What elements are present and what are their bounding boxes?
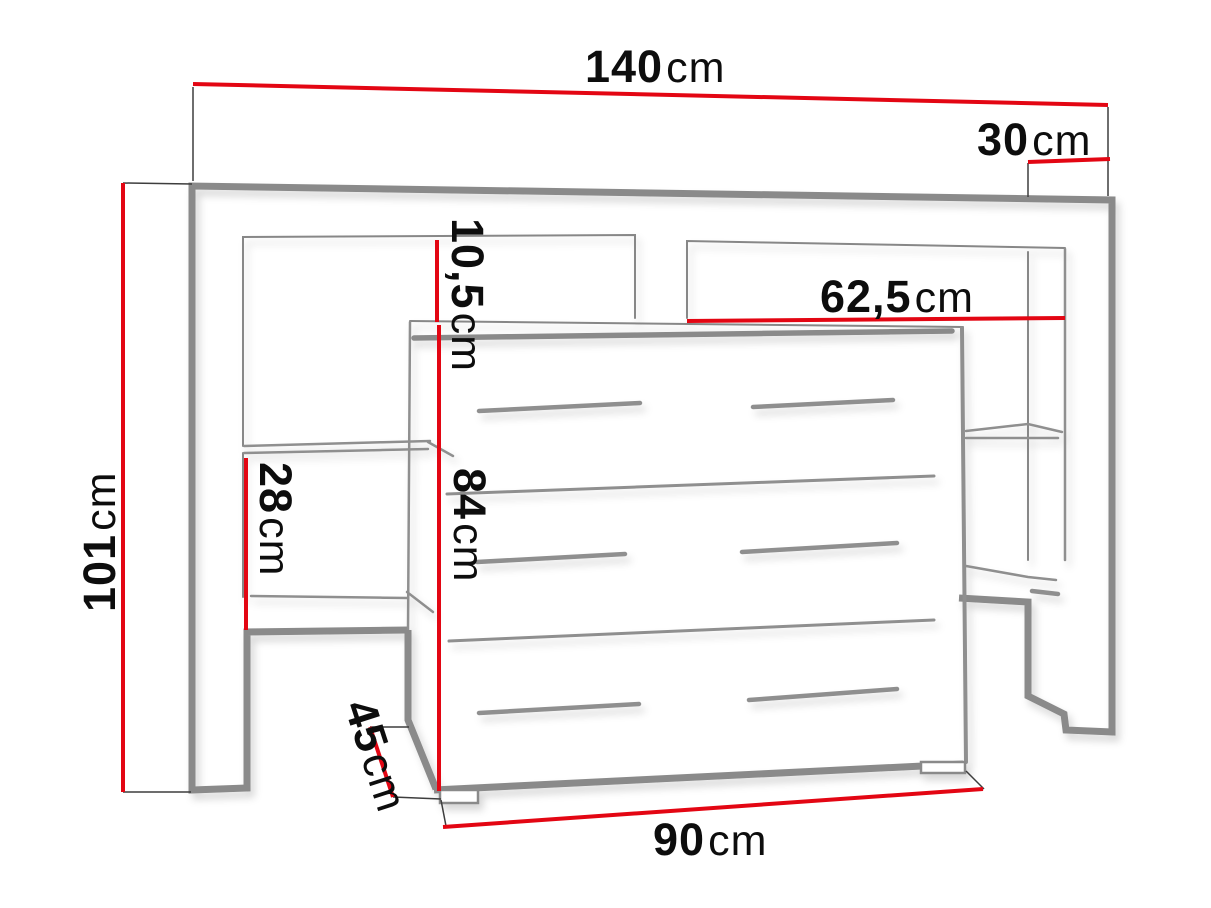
- dimension-diagram: 140cm 30cm 101cm 62,5cm 10,5cm 28cm 84cm…: [0, 0, 1211, 908]
- furniture-group: [192, 186, 1112, 803]
- chest-top-face: [414, 331, 952, 338]
- right-niche-bottom-surface: [966, 566, 1056, 580]
- chest-bottom-edge: [434, 764, 963, 790]
- left-shelf-front-edge: [244, 449, 428, 453]
- label-shelf-space: 28cm: [250, 462, 301, 576]
- label-chest-height: 84cm: [444, 468, 495, 582]
- chest-right-edge: [962, 328, 966, 762]
- left-shelf-top-edge: [244, 441, 430, 446]
- dimension-labels: 140cm 30cm 101cm 62,5cm 10,5cm 28cm 84cm…: [74, 41, 1091, 865]
- drawer3-handle-left: [479, 704, 639, 713]
- right-niche-bottom-front: [1032, 591, 1058, 594]
- label-side-depth: 30cm: [977, 114, 1091, 165]
- diagram-canvas: 140cm 30cm 101cm 62,5cm 10,5cm 28cm 84cm…: [0, 0, 1211, 908]
- left-niche-bottom-corner: [407, 592, 433, 612]
- label-top-gap: 10,5cm: [442, 218, 493, 372]
- drawer-divider-1: [447, 476, 934, 494]
- right-shelf-top-edge: [966, 424, 1062, 432]
- chest-foot-right: [921, 762, 965, 773]
- ext-chestwidth-right: [966, 771, 984, 789]
- drawer2-handle-left: [477, 554, 625, 562]
- drawer1-handle-right: [753, 400, 893, 407]
- chest-left-edge: [408, 322, 410, 630]
- drawer3-handle-right: [749, 689, 897, 700]
- drawer-divider-2: [449, 620, 934, 641]
- chest-base-left-edge: [408, 630, 436, 789]
- chest-foot-left: [440, 790, 478, 803]
- ext-height-top: [123, 183, 192, 184]
- drawer1-handle-left: [479, 403, 640, 411]
- label-chest-width: 90cm: [653, 814, 767, 865]
- left-niche-bottom-surface: [251, 596, 407, 598]
- label-niche-width: 62,5cm: [820, 271, 974, 322]
- frame-outline: [192, 186, 1112, 790]
- drawer2-handle-right: [742, 543, 897, 552]
- label-total-width: 140cm: [585, 41, 725, 92]
- label-total-height: 101cm: [74, 472, 125, 612]
